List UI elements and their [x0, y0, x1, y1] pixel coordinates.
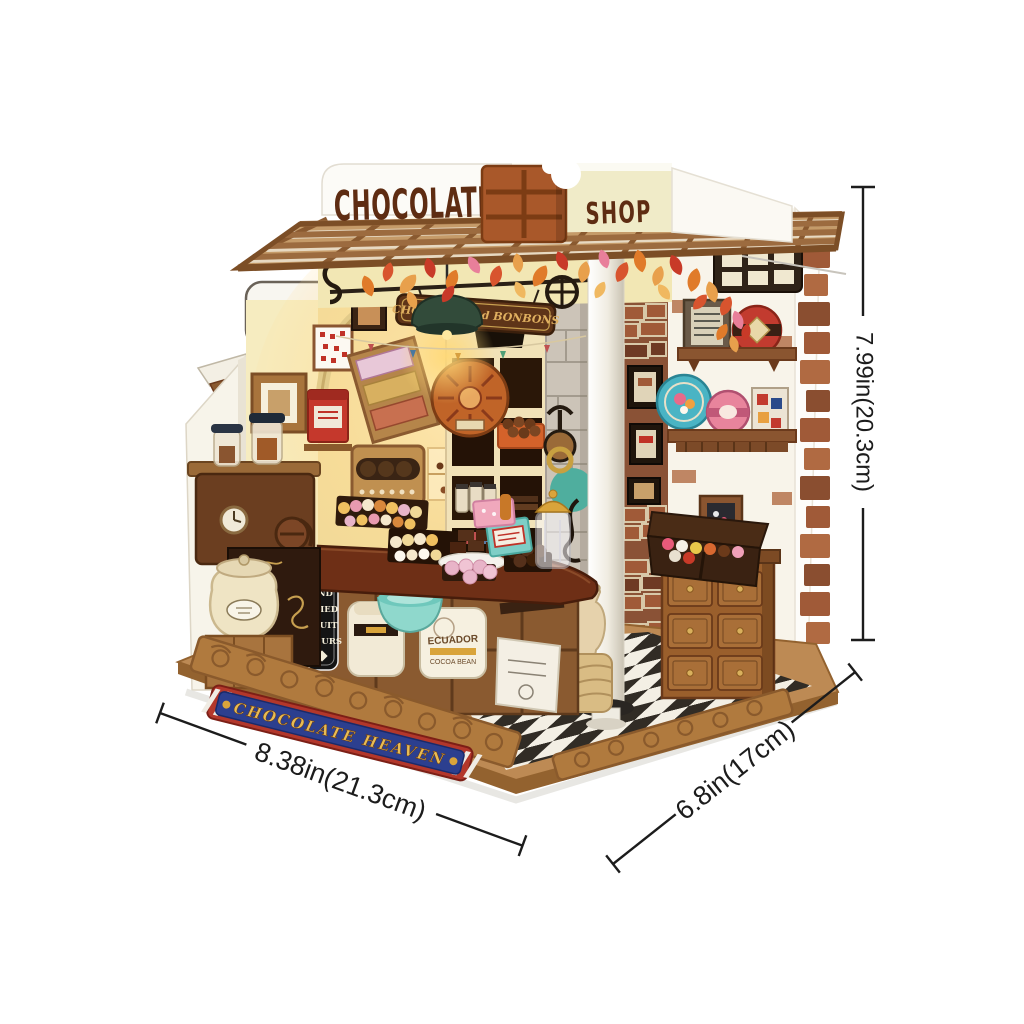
- small-shelf: [304, 444, 352, 451]
- white-paper-sack: [496, 638, 560, 712]
- dresser: [648, 512, 780, 698]
- ceramic-jar: [210, 555, 278, 640]
- red-wall-box: [304, 390, 352, 451]
- pier-frame-2: [630, 424, 662, 464]
- miniature-chocolate-shop-photo: CHOCOLAT and BONBONS: [0, 0, 1024, 1024]
- sack-label-bottom: COCOA BEAN: [430, 659, 476, 666]
- product-photo: CHOCOLAT and BONBONS: [0, 0, 1024, 1024]
- pier-frame-3: [628, 478, 660, 504]
- teal-decorative-tin: [657, 375, 711, 429]
- dimension-height-label: 7.99in(20.3cm): [851, 332, 878, 492]
- chocolate-bar-icon: [482, 158, 581, 242]
- pink-decorative-tin: [707, 391, 749, 433]
- cash-register: [352, 446, 424, 504]
- sign-text-shop: SHOP: [585, 195, 652, 232]
- red-decorative-tin: [733, 306, 781, 354]
- jar-label: [227, 600, 261, 620]
- iron-wheel-ornament: [547, 277, 577, 307]
- amber-bottle: [500, 494, 511, 520]
- cross-stitch-sampler: [314, 326, 352, 370]
- sign-text-chocolate: CHOCOLATE: [333, 178, 494, 231]
- patterned-box: [752, 388, 788, 434]
- candy-display-box: [648, 512, 768, 586]
